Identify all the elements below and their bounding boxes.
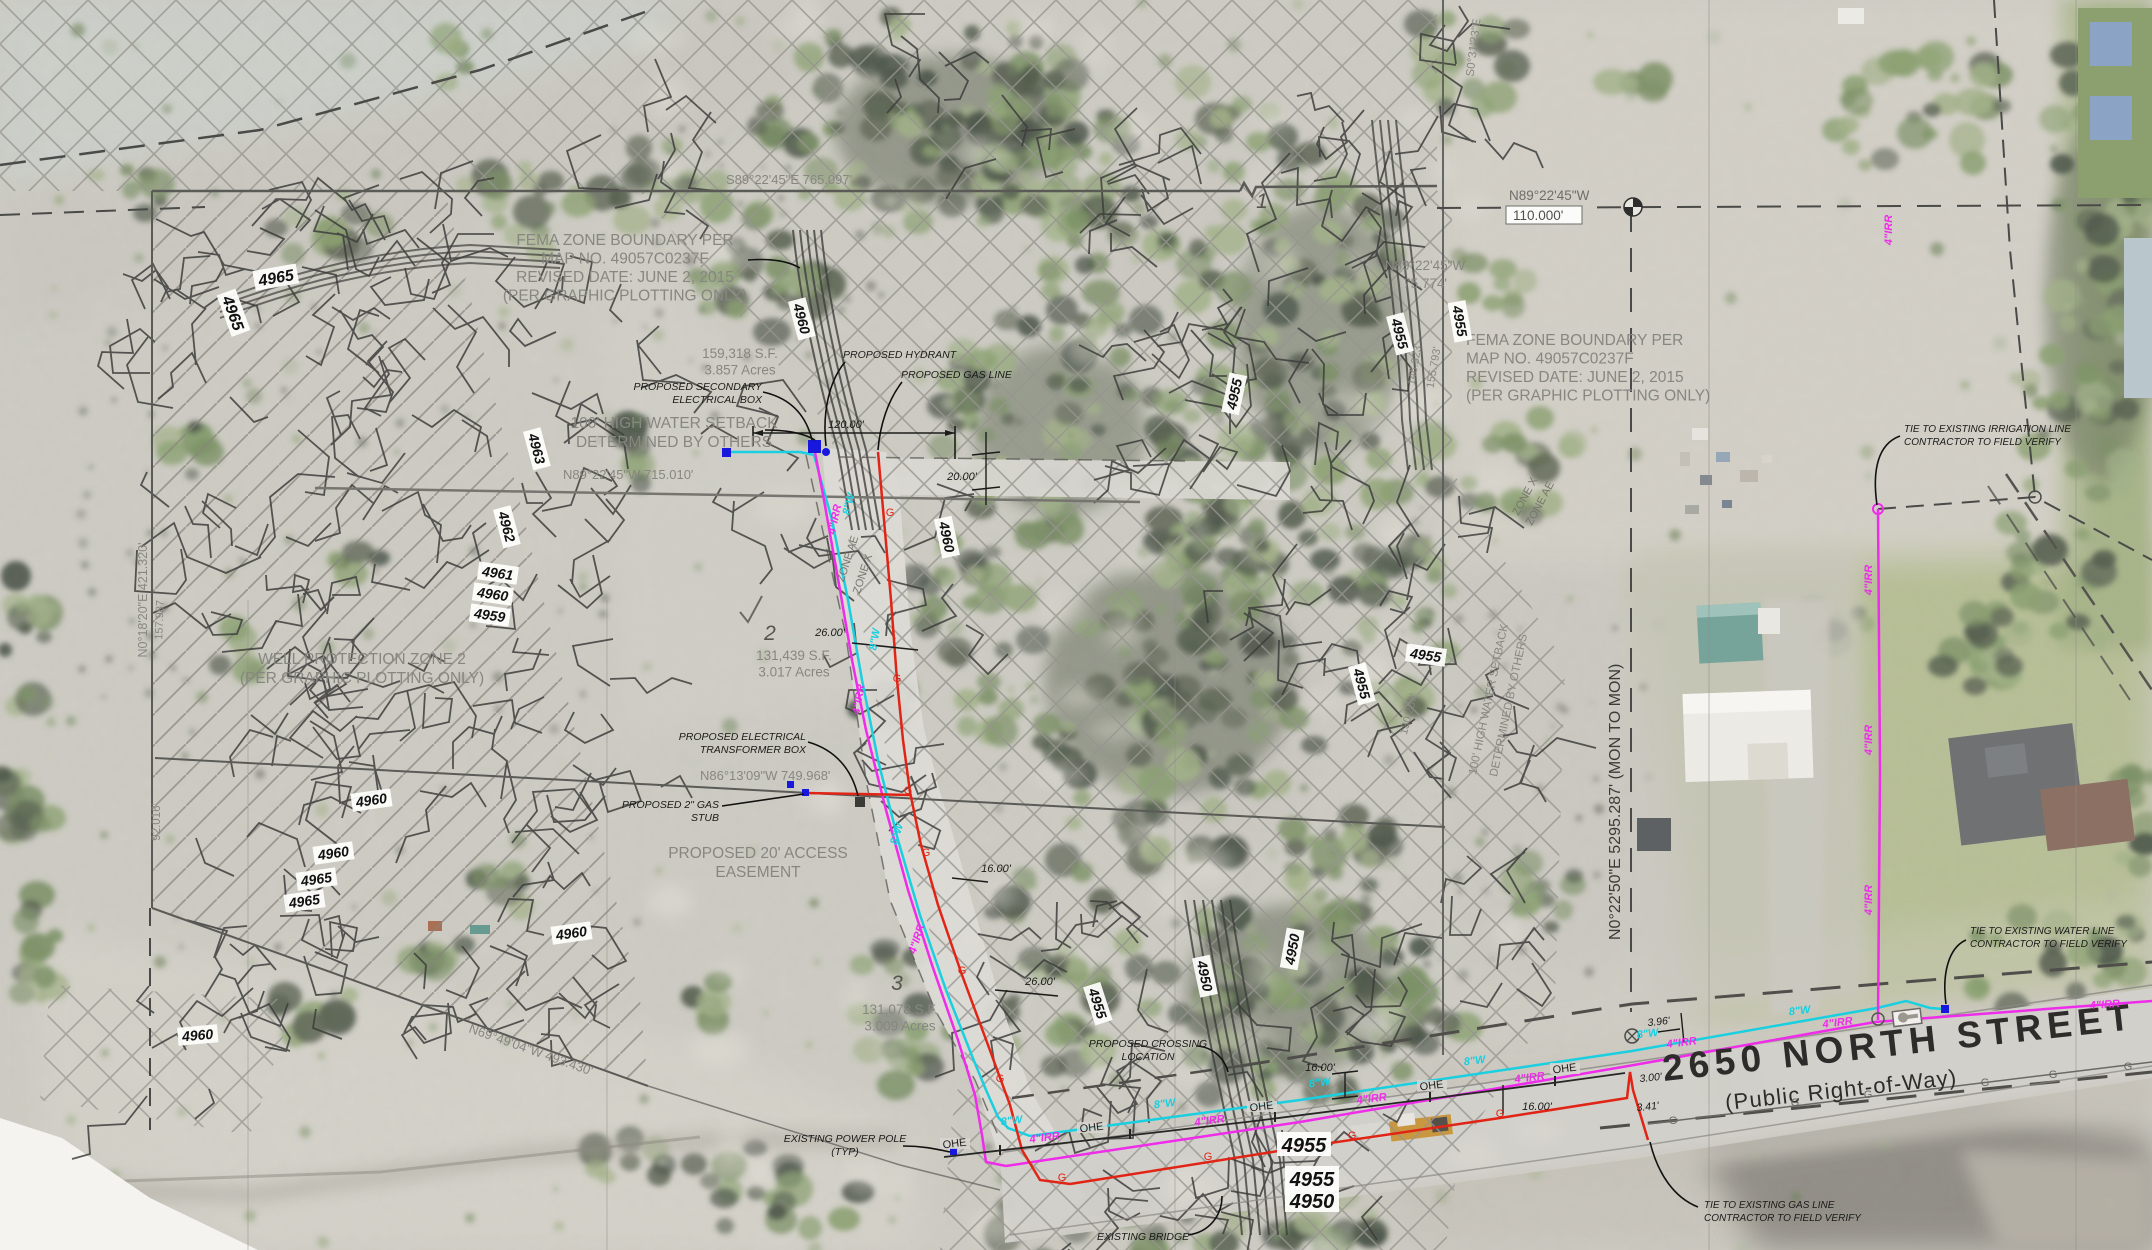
svg-text:131,439 S.F.: 131,439 S.F. — [756, 648, 832, 663]
svg-text:100' HIGH WATER SETBACK: 100' HIGH WATER SETBACK — [570, 415, 778, 432]
svg-text:20.00': 20.00' — [946, 471, 978, 483]
svg-text:4955: 4955 — [1289, 1169, 1335, 1191]
svg-text:(TYP): (TYP) — [831, 1146, 858, 1158]
svg-text:STUB: STUB — [691, 812, 719, 824]
svg-text:26.00': 26.00' — [1024, 976, 1056, 988]
svg-text:N89°22'45"W 715.010': N89°22'45"W 715.010' — [563, 467, 693, 482]
svg-text:92.016': 92.016' — [151, 803, 163, 840]
svg-text:26.00': 26.00' — [814, 627, 846, 639]
svg-text:PROPOSED ELECTRICAL: PROPOSED ELECTRICAL — [679, 731, 806, 743]
svg-text:(PER GRAPHIC PLOTTING ONLY): (PER GRAPHIC PLOTTING ONLY) — [240, 670, 484, 687]
svg-text:131,078 S.F.: 131,078 S.F. — [862, 1002, 938, 1017]
svg-text:PROPOSED 20' ACCESS: PROPOSED 20' ACCESS — [668, 845, 848, 862]
svg-text:3.857 Acres: 3.857 Acres — [704, 363, 776, 378]
svg-text:PROPOSED 2" GAS: PROPOSED 2" GAS — [622, 799, 719, 811]
svg-text:G: G — [922, 847, 931, 859]
svg-text:N86°13'09"W 749.968': N86°13'09"W 749.968' — [700, 768, 830, 783]
svg-text:4"IRR: 4"IRR — [2088, 998, 2120, 1012]
svg-text:16.00': 16.00' — [1522, 1101, 1553, 1113]
svg-text:4"IRR: 4"IRR — [1863, 725, 1875, 756]
svg-text:MAP NO. 49057C0237F: MAP NO. 49057C0237F — [1466, 351, 1634, 368]
svg-text:G: G — [996, 1073, 1005, 1085]
svg-text:3.017 Acres: 3.017 Acres — [758, 665, 830, 680]
svg-text:G: G — [904, 785, 913, 797]
svg-text:PROPOSED HYDRANT: PROPOSED HYDRANT — [843, 349, 958, 361]
svg-text:REVISED DATE: JUNE 2, 2015: REVISED DATE: JUNE 2, 2015 — [1466, 369, 1684, 386]
svg-text:REVISED DATE: JUNE 2, 2015: REVISED DATE: JUNE 2, 2015 — [516, 269, 734, 286]
svg-text:S89°22'45"E 765.097': S89°22'45"E 765.097' — [726, 172, 852, 187]
svg-text:4950: 4950 — [1289, 1191, 1335, 1213]
svg-text:3.00': 3.00' — [1639, 1071, 1664, 1085]
svg-text:120.00': 120.00' — [828, 419, 865, 431]
svg-text:G: G — [1669, 1115, 1678, 1127]
svg-text:2: 2 — [763, 622, 776, 645]
svg-text:4"IRR: 4"IRR — [1863, 565, 1875, 596]
svg-text:TIE TO EXISTING IRRIGATION LIN: TIE TO EXISTING IRRIGATION LINE — [1904, 424, 2071, 435]
svg-text:EASEMENT: EASEMENT — [715, 864, 801, 881]
svg-text:TRANSFORMER BOX: TRANSFORMER BOX — [700, 744, 807, 756]
svg-text:N89°22'45"W: N89°22'45"W — [1509, 188, 1590, 203]
svg-text:16.00': 16.00' — [1305, 1062, 1336, 1074]
svg-text:4"IRR: 4"IRR — [1863, 885, 1875, 916]
svg-text:ELECTRICAL BOX: ELECTRICAL BOX — [672, 394, 763, 406]
svg-text:DETERMINED BY OTHERS: DETERMINED BY OTHERS — [576, 434, 772, 451]
svg-text:G: G — [1348, 1130, 1357, 1142]
svg-text:(PER GRAPHIC PLOTTING ONLY): (PER GRAPHIC PLOTTING ONLY) — [1466, 388, 1710, 405]
svg-text:4955: 4955 — [1281, 1135, 1327, 1157]
svg-text:110.000': 110.000' — [1513, 208, 1563, 223]
svg-text:CONTRACTOR TO FIELD VERIFY: CONTRACTOR TO FIELD VERIFY — [1970, 939, 2128, 950]
svg-text:3.009 Acres: 3.009 Acres — [864, 1019, 936, 1034]
svg-text:PROPOSED CROSSING: PROPOSED CROSSING — [1089, 1038, 1207, 1050]
svg-text:G: G — [893, 673, 902, 685]
svg-text:N0°18'20"E 421.320': N0°18'20"E 421.320' — [136, 543, 150, 658]
svg-text:TIE TO EXISTING WATER LINE: TIE TO EXISTING WATER LINE — [1970, 926, 2115, 937]
svg-text:(PER GRAPHIC PLOTTING ONLY): (PER GRAPHIC PLOTTING ONLY) — [503, 288, 747, 305]
svg-text:G: G — [1864, 1089, 1873, 1101]
svg-text:FEMA ZONE BOUNDARY PER: FEMA ZONE BOUNDARY PER — [1466, 332, 1683, 349]
svg-text:N0°22'50"E 5295.287' (MON TO: N0°22'50"E 5295.287' (MON TO MON) — [1607, 664, 1624, 940]
svg-text:MAP NO. 49057C0237F: MAP NO. 49057C0237F — [541, 251, 709, 268]
svg-text:PROPOSED GAS LINE: PROPOSED GAS LINE — [901, 369, 1013, 381]
svg-text:3.41': 3.41' — [1636, 1100, 1661, 1114]
svg-text:FEMA ZONE BOUNDARY PER: FEMA ZONE BOUNDARY PER — [516, 232, 733, 249]
svg-text:4960: 4960 — [180, 1026, 214, 1045]
svg-text:16.00': 16.00' — [981, 863, 1012, 875]
svg-text:CONTRACTOR TO FIELD VERIFY: CONTRACTOR TO FIELD VERIFY — [1904, 437, 2062, 448]
svg-text:G: G — [2124, 1061, 2133, 1073]
svg-text:N89°22'45"W: N89°22'45"W — [1385, 258, 1466, 273]
svg-text:G: G — [886, 507, 895, 519]
svg-text:4"IRR: 4"IRR — [1883, 215, 1895, 246]
svg-text:TIE TO EXISTING GAS LINE: TIE TO EXISTING GAS LINE — [1704, 1200, 1835, 1211]
svg-text:G: G — [2049, 1069, 2058, 1081]
svg-text:EXISTING POWER POLE: EXISTING POWER POLE — [784, 1133, 908, 1145]
svg-text:G: G — [1981, 1077, 1990, 1089]
svg-text:G: G — [1058, 1172, 1067, 1184]
svg-text:1: 1 — [1256, 190, 1268, 213]
svg-text:75.774': 75.774' — [1403, 276, 1447, 291]
svg-text:G: G — [958, 965, 967, 977]
svg-text:G: G — [1496, 1108, 1505, 1120]
svg-text:CONTRACTOR TO FIELD VERIFY: CONTRACTOR TO FIELD VERIFY — [1704, 1213, 1862, 1224]
svg-text:EXISTING BRIDGE: EXISTING BRIDGE — [1097, 1231, 1190, 1243]
svg-text:159,318 S.F.: 159,318 S.F. — [702, 346, 778, 361]
svg-text:G: G — [1791, 1097, 1800, 1109]
svg-text:157.987: 157.987 — [153, 600, 166, 640]
svg-text:WELL PROTECTION ZONE 2: WELL PROTECTION ZONE 2 — [258, 651, 466, 668]
svg-text:3: 3 — [891, 972, 903, 995]
svg-text:PROPOSED SECONDARY: PROPOSED SECONDARY — [633, 381, 763, 393]
svg-text:LOCATION: LOCATION — [1122, 1051, 1175, 1063]
svg-text:G: G — [1204, 1151, 1213, 1163]
